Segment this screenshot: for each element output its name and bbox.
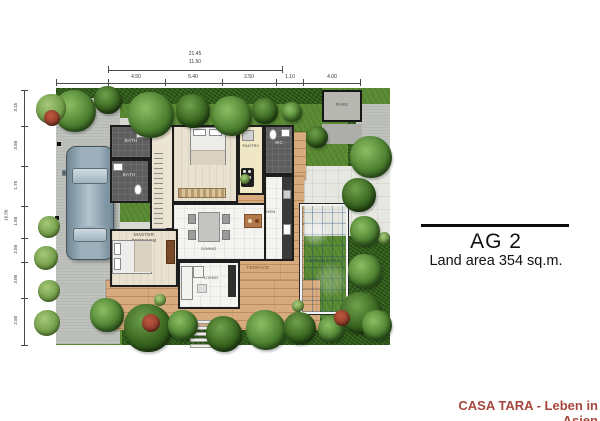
dim-tick — [276, 79, 277, 86]
dim-tick — [21, 262, 28, 263]
dim-tick — [21, 206, 28, 207]
tree — [252, 98, 278, 124]
room-label: BATH — [110, 172, 148, 177]
dim-left-overall: 16.50 — [4, 210, 9, 221]
red-shrub — [142, 314, 160, 332]
tree — [348, 254, 382, 288]
dim-tick — [360, 79, 361, 86]
chair — [188, 230, 196, 240]
lamp-post — [57, 142, 61, 146]
tree — [282, 102, 302, 122]
dim-segment: 3.50 — [14, 141, 19, 150]
room-label: BATH — [112, 138, 150, 143]
dim-segment: 5.40 — [181, 75, 205, 80]
dim-segment: 3.15 — [14, 103, 19, 112]
tree — [362, 310, 392, 340]
dim-tick — [303, 79, 304, 86]
red-shrub — [334, 310, 350, 326]
island-table — [244, 214, 262, 228]
chair — [222, 230, 230, 240]
chair — [222, 214, 230, 224]
coffee-table — [197, 284, 207, 293]
floor-plan-image: 21.45 11.50 4.50 5.40 2.50 1.10 4.00 3.1… — [0, 0, 600, 421]
annotation-rule — [421, 224, 569, 227]
room-label: DINING — [192, 247, 226, 252]
plan-subtitle: Land area 354 sq.m. — [411, 253, 581, 269]
tree — [206, 316, 242, 352]
dim-segment: 4.50 — [124, 75, 148, 80]
chair — [188, 214, 196, 224]
dim-tick — [21, 90, 28, 91]
tree — [350, 216, 380, 246]
brand-footer: CASA TARA - Leben in Asien — [420, 398, 598, 421]
tree — [168, 310, 198, 340]
dresser — [178, 188, 226, 198]
tv-console — [228, 265, 236, 297]
dim-top-overall: 21.45 — [165, 52, 225, 57]
parking-pad-label: PARK — [324, 102, 360, 107]
tree — [350, 136, 392, 178]
plan-title: AG 2 — [411, 230, 581, 254]
dim-tick — [21, 345, 28, 346]
car-mirror — [62, 170, 66, 176]
tree — [128, 92, 174, 138]
dim-line — [24, 90, 25, 345]
red-shrub — [44, 110, 60, 126]
tree — [306, 126, 328, 148]
pool-label: SWIMMING POOL — [302, 259, 346, 264]
dim-tick — [56, 79, 57, 86]
dim-segment: 3.00 — [14, 275, 19, 284]
tree — [90, 298, 124, 332]
hallway — [150, 125, 174, 230]
tree — [176, 94, 210, 128]
wardrobe — [154, 153, 163, 225]
dim-segment: 1.10 — [278, 75, 302, 80]
dining-table — [198, 212, 220, 242]
tree — [212, 96, 252, 136]
dim-line — [108, 70, 282, 71]
room-label: WC — [264, 140, 294, 145]
dim-tick — [282, 66, 283, 73]
dim-tick — [108, 79, 109, 86]
sofa — [193, 266, 204, 278]
dim-segment: 2.50 — [14, 316, 19, 325]
tree — [342, 178, 376, 212]
dim-segment: 2.50 — [237, 75, 261, 80]
dim-tick — [21, 298, 28, 299]
dim-segment: 4.00 — [320, 75, 344, 80]
tree — [284, 312, 316, 344]
room-label: PANTRY — [236, 144, 266, 149]
dim-tick — [165, 79, 166, 86]
tree — [94, 86, 122, 114]
dim-top-inner: 11.50 — [165, 60, 225, 65]
dim-tick — [21, 126, 28, 127]
dim-segment: 1.50 — [14, 217, 19, 226]
dim-segment: 1.75 — [14, 181, 19, 190]
sofa — [181, 266, 193, 300]
dim-tick — [108, 66, 109, 73]
dim-tick — [222, 79, 223, 86]
palm-shrub — [34, 246, 58, 270]
tree — [246, 310, 286, 350]
dim-segment: 2.50 — [14, 245, 19, 254]
dim-tick — [21, 166, 28, 167]
room-label: MASTER — [124, 232, 164, 237]
dim-tick — [21, 238, 28, 239]
dresser — [166, 240, 175, 264]
dim-line — [56, 83, 360, 84]
